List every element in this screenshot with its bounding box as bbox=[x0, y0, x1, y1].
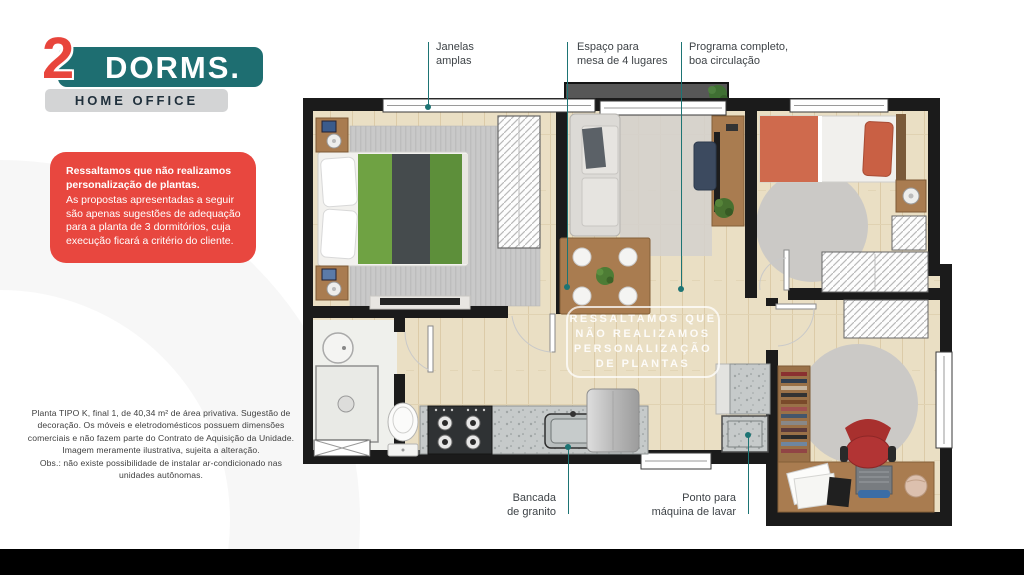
notebook bbox=[827, 477, 852, 507]
bottom-letterbox-bar bbox=[0, 549, 1024, 575]
dining-chair bbox=[573, 287, 591, 305]
bedroom1-window bbox=[383, 99, 595, 112]
floor-plan bbox=[0, 0, 1024, 575]
door-leaf bbox=[784, 250, 789, 290]
watermark-line: NÃO REALIZAMOS bbox=[575, 327, 710, 342]
toilet-icon bbox=[388, 403, 418, 441]
callout-line-mesa bbox=[567, 42, 568, 286]
callout-dot-bancada bbox=[565, 444, 571, 450]
dining-area bbox=[560, 238, 650, 314]
picture-frame bbox=[322, 269, 336, 280]
callout-line-janelas bbox=[428, 42, 429, 108]
callout-label-lavar: Ponto para máquina de lavar bbox=[600, 491, 736, 519]
callout-label-janelas: Janelas amplas bbox=[436, 40, 474, 68]
pillow bbox=[320, 157, 357, 207]
bedroom2-window bbox=[790, 99, 888, 112]
wardrobe bbox=[892, 216, 926, 250]
picture-frame bbox=[322, 121, 336, 132]
callout-label-mesa: Espaço para mesa de 4 lugares bbox=[577, 40, 668, 68]
tv-icon bbox=[380, 298, 460, 305]
laundry-counter bbox=[730, 364, 770, 414]
sink-icon bbox=[323, 333, 353, 363]
pillow bbox=[863, 121, 894, 176]
cabinet bbox=[716, 364, 730, 414]
headboard bbox=[896, 114, 906, 184]
callout-line-bancada bbox=[568, 448, 569, 514]
door-leaf bbox=[428, 326, 433, 372]
dining-chair bbox=[619, 248, 637, 266]
callout-dot-mesa bbox=[564, 284, 570, 290]
office-window bbox=[936, 352, 952, 448]
laptop-trackpad bbox=[858, 490, 890, 498]
dining-chair bbox=[619, 287, 637, 305]
laptop-icon bbox=[856, 466, 892, 494]
callout-line-programa bbox=[681, 42, 682, 288]
callout-dot-janelas bbox=[425, 104, 431, 110]
door-leaf bbox=[776, 304, 816, 309]
media-device bbox=[726, 124, 738, 131]
throw-blanket bbox=[582, 127, 606, 169]
balcony-window bbox=[600, 101, 726, 115]
stove-icon bbox=[428, 406, 492, 454]
dining-chair bbox=[573, 248, 591, 266]
callout-label-bancada: Bancada de granito bbox=[430, 491, 556, 519]
globe-icon bbox=[905, 475, 927, 497]
shower-drain-icon bbox=[338, 396, 354, 412]
watermark-line: PERSONALIZAÇÃO bbox=[574, 342, 712, 357]
laundry bbox=[716, 364, 770, 452]
ottoman bbox=[694, 142, 716, 190]
callout-dot-lavar bbox=[745, 432, 751, 438]
pillow bbox=[320, 209, 357, 259]
marketing-slide: DORMS. 2 HOME OFFICE Ressaltamos que não… bbox=[0, 0, 1024, 575]
callout-dot-programa bbox=[678, 286, 684, 292]
watermark-line: DE PLANTAS bbox=[596, 357, 690, 372]
closet bbox=[844, 300, 928, 338]
door-leaf bbox=[550, 314, 555, 352]
watermark: RESSALTAMOS QUE NÃO REALIZAMOS PERSONALI… bbox=[566, 306, 720, 378]
watermark-line: RESSALTAMOS QUE bbox=[569, 312, 716, 327]
callout-line-lavar bbox=[748, 437, 749, 514]
callout-label-programa: Programa completo, boa circulação bbox=[689, 40, 788, 68]
kitchen-window bbox=[641, 453, 711, 469]
